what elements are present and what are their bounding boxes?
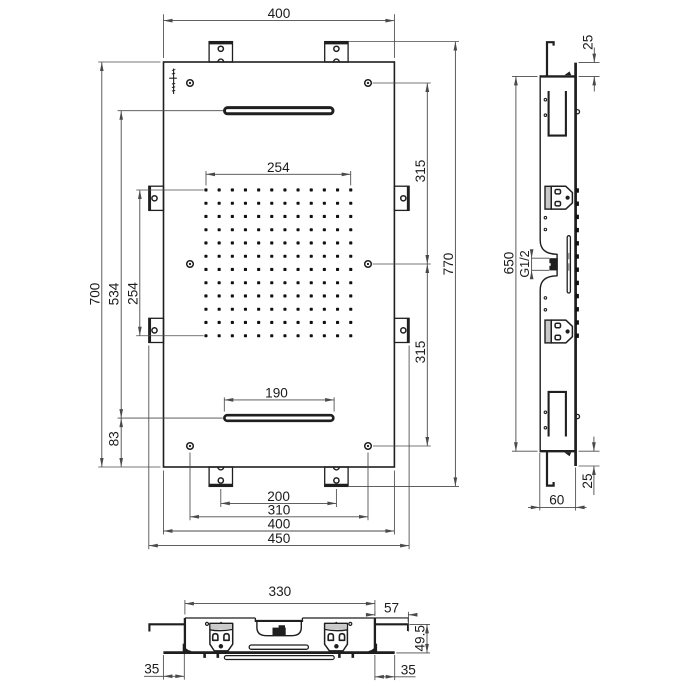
svg-text:35: 35 (144, 662, 159, 677)
svg-text:60: 60 (549, 492, 565, 507)
svg-text:83: 83 (107, 431, 122, 446)
svg-text:700: 700 (87, 282, 102, 305)
svg-text:330: 330 (269, 584, 292, 599)
svg-text:254: 254 (267, 160, 290, 175)
svg-text:450: 450 (268, 531, 291, 546)
svg-text:254: 254 (125, 282, 140, 305)
svg-text:770: 770 (441, 252, 456, 275)
svg-text:25: 25 (580, 473, 595, 488)
svg-text:400: 400 (268, 517, 291, 532)
svg-text:534: 534 (107, 282, 122, 305)
svg-text:315: 315 (413, 160, 428, 183)
svg-text:25: 25 (581, 35, 596, 50)
svg-text:190: 190 (265, 385, 288, 400)
svg-text:400: 400 (268, 6, 291, 21)
svg-text:35: 35 (401, 663, 416, 678)
svg-text:57: 57 (384, 601, 399, 616)
svg-text:650: 650 (501, 251, 516, 274)
svg-text:315: 315 (413, 341, 428, 364)
svg-text:49.5: 49.5 (413, 625, 428, 651)
svg-text:310: 310 (268, 502, 291, 517)
svg-text:G1/2: G1/2 (518, 250, 532, 277)
